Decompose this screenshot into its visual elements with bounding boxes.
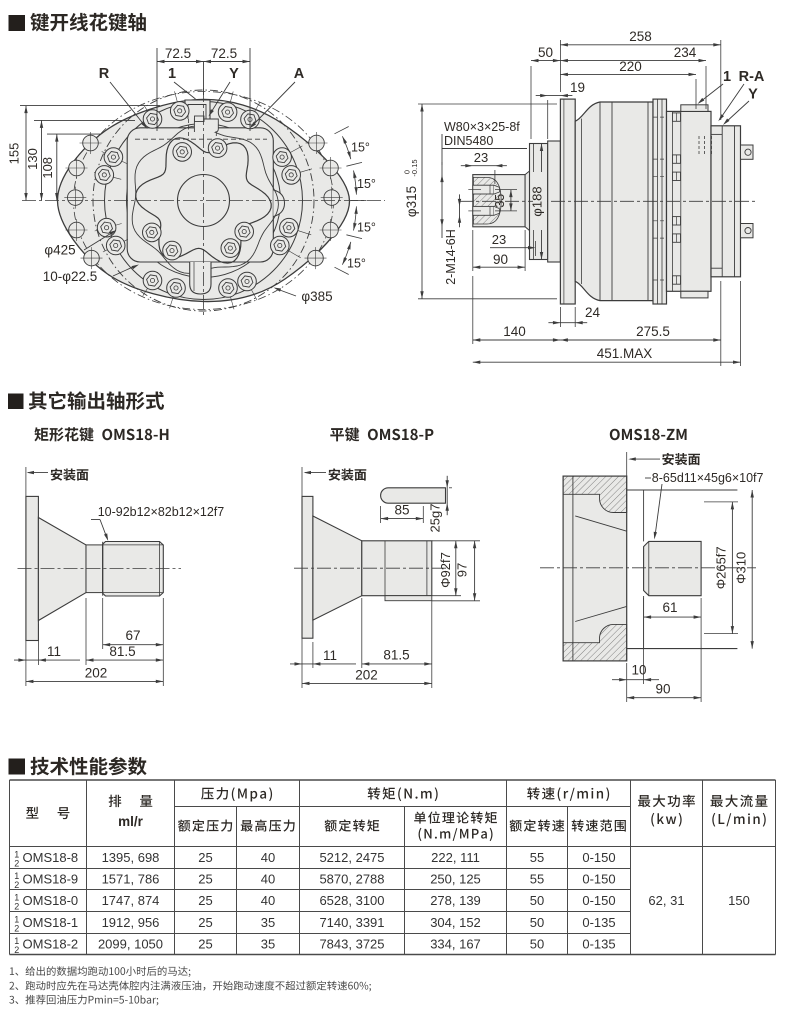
svg-text:451.MAX: 451.MAX (597, 346, 653, 361)
svg-text:Φ310: Φ310 (734, 552, 749, 584)
svg-text:25: 25 (198, 937, 212, 952)
svg-text:25: 25 (198, 850, 212, 865)
svg-text:R-A: R-A (739, 69, 765, 85)
svg-text:6528, 3100: 6528, 3100 (319, 893, 384, 908)
svg-text:50: 50 (530, 893, 544, 908)
svg-text:φ188: φ188 (530, 186, 545, 216)
svg-text:234: 234 (674, 45, 697, 60)
svg-text:15°: 15° (347, 257, 366, 271)
svg-text:150: 150 (728, 893, 750, 908)
svg-text:35: 35 (261, 915, 275, 930)
svg-text:0-150: 0-150 (582, 850, 615, 865)
svg-text:19: 19 (570, 80, 585, 95)
svg-text:2: 2 (14, 859, 19, 869)
svg-text:φ425: φ425 (44, 243, 75, 258)
svg-text:ml/r: ml/r (118, 814, 144, 829)
svg-text:2: 2 (14, 924, 19, 934)
svg-text:W80×3×25-8f: W80×3×25-8f (444, 120, 520, 134)
svg-text:0-135: 0-135 (582, 937, 615, 952)
svg-text:90: 90 (493, 252, 508, 267)
svg-text:1571, 786: 1571, 786 (102, 872, 160, 887)
svg-text:61: 61 (662, 600, 677, 615)
svg-text:40: 40 (261, 850, 275, 865)
svg-text:24: 24 (585, 305, 601, 320)
svg-text:0-150: 0-150 (582, 872, 615, 887)
svg-text:-0.15: -0.15 (410, 159, 419, 176)
svg-text:25: 25 (198, 893, 212, 908)
svg-text:Φ265f7: Φ265f7 (714, 546, 729, 589)
svg-text:7140, 3391: 7140, 3391 (319, 915, 384, 930)
svg-text:90: 90 (655, 682, 670, 697)
svg-text:1: 1 (723, 69, 731, 85)
svg-text:130: 130 (25, 148, 40, 170)
svg-text:67: 67 (125, 628, 140, 643)
svg-text:50: 50 (530, 937, 544, 952)
svg-text:50: 50 (530, 915, 544, 930)
svg-text:5212, 2475: 5212, 2475 (319, 850, 384, 865)
svg-text:OMS18-0: OMS18-0 (23, 893, 79, 908)
svg-text:φ385: φ385 (301, 289, 332, 304)
svg-text:1: 1 (168, 66, 176, 82)
svg-text:25g7: 25g7 (428, 504, 443, 533)
svg-text:7843, 3725: 7843, 3725 (319, 937, 384, 952)
svg-text:81.5: 81.5 (109, 644, 135, 659)
svg-text:81.5: 81.5 (383, 648, 409, 663)
svg-text:108: 108 (40, 157, 55, 179)
svg-text:Y: Y (229, 66, 239, 82)
svg-text:OMS18-1: OMS18-1 (23, 915, 79, 930)
svg-text:10-φ22.5: 10-φ22.5 (43, 269, 98, 284)
svg-text:258: 258 (629, 29, 652, 44)
svg-text:155: 155 (7, 143, 22, 165)
svg-text:0-150: 0-150 (582, 893, 615, 908)
svg-text:Y: Y (748, 87, 758, 103)
svg-text:140: 140 (503, 324, 526, 339)
svg-text:2: 2 (14, 880, 19, 890)
svg-text:2: 2 (14, 945, 19, 955)
svg-text:15°: 15° (351, 141, 370, 155)
svg-text:35: 35 (493, 194, 507, 208)
svg-text:0-135: 0-135 (582, 915, 615, 930)
svg-text:202: 202 (85, 666, 108, 681)
svg-text:62, 31: 62, 31 (648, 893, 684, 908)
svg-text:15°: 15° (357, 177, 376, 191)
svg-text:1747, 874: 1747, 874 (102, 893, 160, 908)
svg-text:11: 11 (47, 644, 61, 659)
svg-text:85: 85 (394, 503, 409, 518)
svg-text:10: 10 (631, 663, 646, 678)
svg-text:275.5: 275.5 (636, 324, 670, 339)
svg-text:23: 23 (474, 150, 488, 165)
svg-text:25: 25 (198, 915, 212, 930)
svg-text:15°: 15° (357, 221, 376, 235)
svg-text:55: 55 (530, 850, 544, 865)
svg-text:1912, 956: 1912, 956 (102, 915, 160, 930)
svg-text:23: 23 (492, 232, 506, 247)
svg-text:50: 50 (538, 45, 553, 60)
svg-text:35: 35 (261, 937, 275, 952)
svg-text:DIN5480: DIN5480 (444, 134, 493, 148)
svg-text:R: R (99, 66, 110, 82)
svg-text:Φ92f7: Φ92f7 (438, 552, 453, 588)
svg-text:220: 220 (619, 59, 642, 74)
svg-text:2: 2 (14, 902, 19, 912)
svg-text:11: 11 (323, 648, 337, 663)
svg-text:A: A (294, 66, 305, 82)
svg-text:72.5: 72.5 (211, 46, 237, 61)
svg-text:40: 40 (261, 872, 275, 887)
svg-text:2099, 1050: 2099, 1050 (98, 937, 163, 952)
svg-text:25: 25 (198, 872, 212, 887)
svg-text:55: 55 (530, 872, 544, 887)
svg-text:222, 111: 222, 111 (431, 850, 480, 865)
svg-text:8-65d11×45g6×10f7: 8-65d11×45g6×10f7 (652, 471, 764, 485)
svg-text:1395, 698: 1395, 698 (102, 850, 160, 865)
svg-text:10-92b12×82b12×12f7: 10-92b12×82b12×12f7 (98, 505, 225, 519)
svg-text:5870, 2788: 5870, 2788 (319, 872, 384, 887)
svg-text:OMS18-2: OMS18-2 (23, 937, 79, 952)
svg-text:250, 125: 250, 125 (430, 872, 481, 887)
svg-text:40: 40 (261, 893, 275, 908)
svg-text:OMS18-9: OMS18-9 (23, 872, 79, 887)
svg-text:202: 202 (355, 668, 378, 683)
svg-text:2-M14-6H: 2-M14-6H (444, 229, 458, 285)
svg-text:278, 139: 278, 139 (430, 893, 481, 908)
svg-text:304, 152: 304, 152 (430, 915, 481, 930)
svg-text:φ315: φ315 (404, 186, 419, 217)
svg-text:334, 167: 334, 167 (430, 937, 481, 952)
svg-text:OMS18-8: OMS18-8 (23, 850, 79, 865)
svg-text:72.5: 72.5 (165, 46, 191, 61)
svg-text:97: 97 (455, 563, 470, 577)
